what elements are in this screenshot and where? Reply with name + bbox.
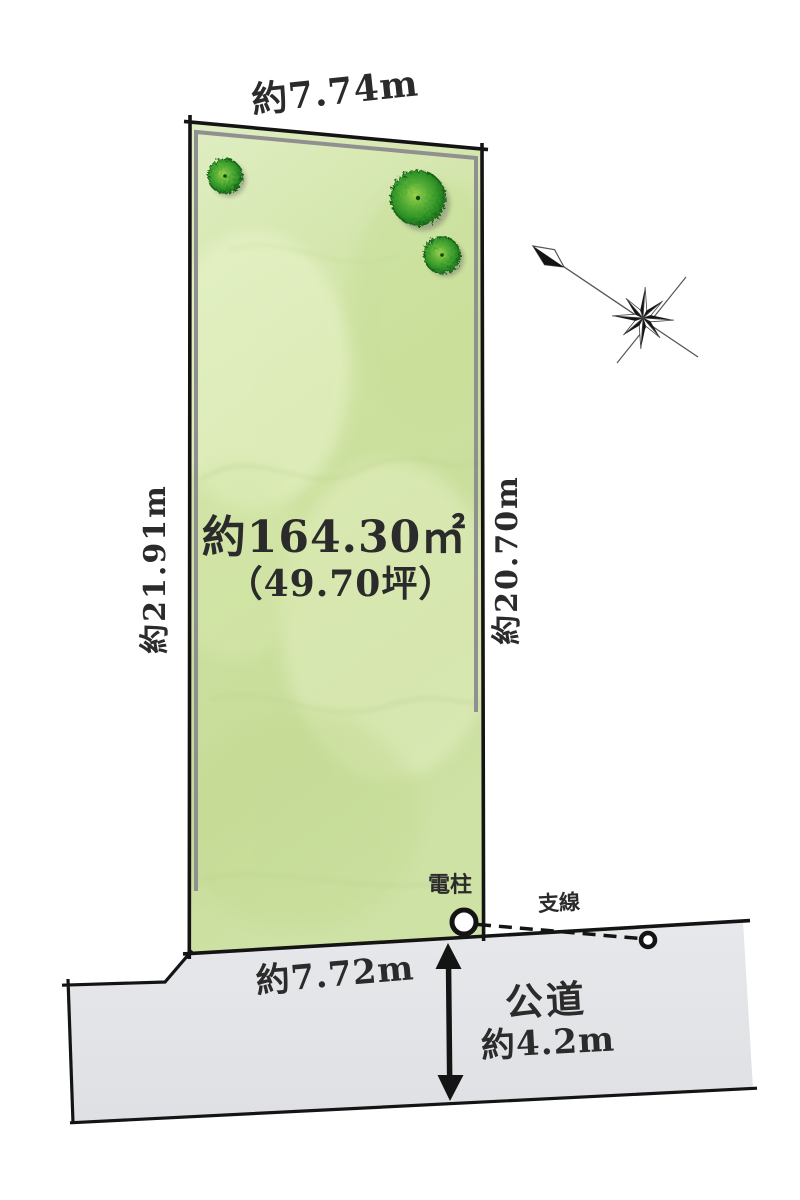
utility-pole-label: 電柱 — [405, 873, 495, 897]
utility-pole-circle-icon — [452, 910, 476, 934]
road-width-label: 約4.2m — [467, 1021, 629, 1065]
guy-wire-anchor-circle-icon — [641, 933, 655, 947]
land-plot-diagram: 約7.74m 約21.91m 約20.70m 約164.30㎡ （49.70坪）… — [0, 0, 800, 1200]
guy-wire-label: 支線 — [513, 889, 604, 917]
compass-rose-icon — [610, 285, 676, 351]
road-name-label: 公道 — [465, 977, 627, 1025]
north-arrow-icon — [533, 246, 698, 363]
plot-area-label: 約164.30㎡ — [184, 514, 484, 562]
plot-area-tsubo-label: （49.70坪） — [191, 564, 491, 604]
dimension-label-right: 約20.70m — [491, 450, 525, 670]
dimension-label-left: 約21.91m — [139, 459, 173, 679]
